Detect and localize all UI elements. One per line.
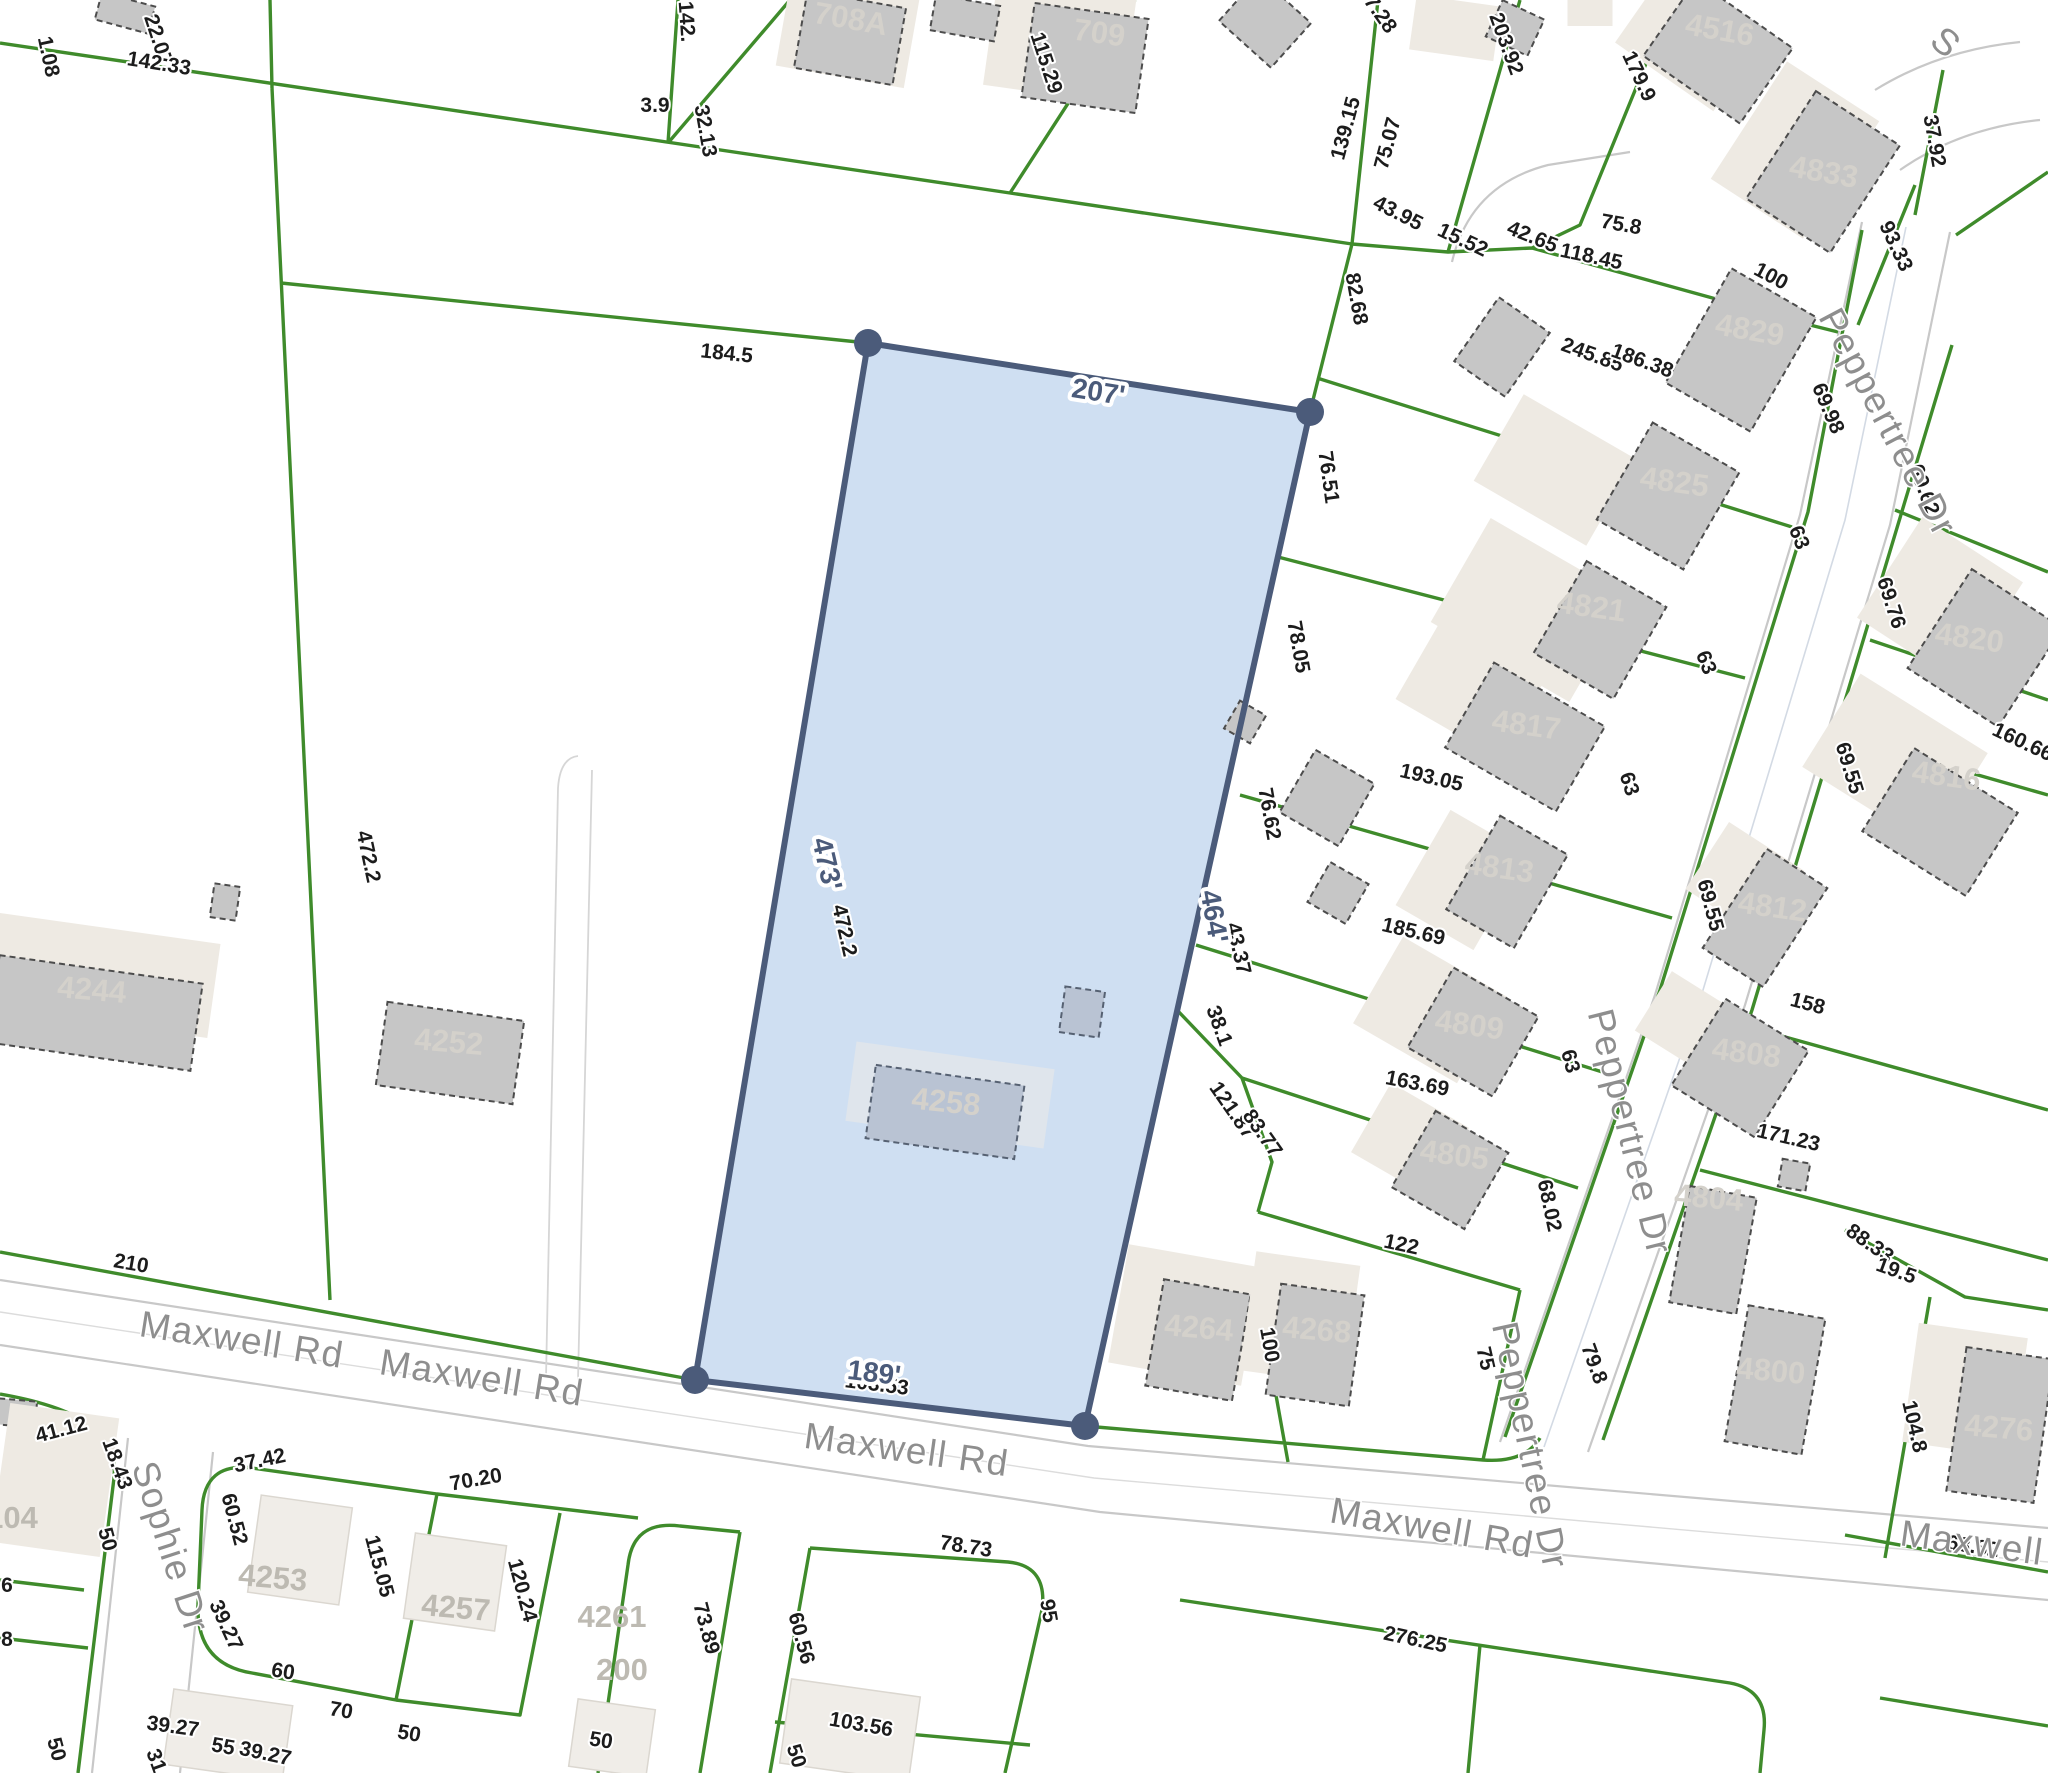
parcel-number-label: 4253 bbox=[237, 1557, 309, 1598]
dimension-label: 32.13 bbox=[690, 103, 722, 159]
dimension-label: 37.92 bbox=[1919, 113, 1951, 169]
dimension-label: 122 bbox=[1382, 1230, 1421, 1260]
building-shadow bbox=[1568, 0, 1613, 26]
parcel-vertex-ne[interactable] bbox=[1296, 398, 1324, 426]
street-name-label: S bbox=[1923, 18, 1969, 66]
dimension-label: 19.5 bbox=[1873, 1253, 1920, 1289]
parcel-number-label: 4804 bbox=[1673, 1177, 1746, 1218]
highlight-dimension-label: 464' bbox=[1194, 887, 1234, 945]
dimension-label: 15.52 bbox=[1434, 219, 1491, 262]
parcel-number-label: 4261 bbox=[578, 1599, 647, 1634]
dimension-label: 139.15 bbox=[1326, 94, 1365, 162]
dimension-label: 184.5 bbox=[699, 339, 754, 367]
southwest-boundaries bbox=[0, 1252, 740, 1773]
parcel-number-label: 4264 bbox=[1163, 1307, 1236, 1348]
dimension-label: 160.66 bbox=[1989, 718, 2048, 766]
parcel-number-label: 104 bbox=[0, 1500, 39, 1535]
dimension-label: 70.20 bbox=[448, 1464, 504, 1496]
dimension-label: 158 bbox=[1788, 988, 1828, 1019]
dimension-label: 82.68 bbox=[1341, 271, 1373, 327]
dimension-label: 276.25 bbox=[1382, 1622, 1450, 1658]
street-name-label: Maxwell R bbox=[1898, 1513, 2048, 1579]
street-name-label: Maxwell Rd bbox=[1327, 1490, 1537, 1566]
dimension-label: 3.9 bbox=[640, 94, 669, 117]
highlight-dimension-label: 189' bbox=[846, 1354, 903, 1391]
parcel-number-label: 4800 bbox=[1735, 1350, 1807, 1391]
dimension-label: 76.51 bbox=[1313, 449, 1343, 505]
dimension-label: 63 bbox=[1691, 647, 1721, 677]
dimension-label: 43.95 bbox=[1369, 191, 1427, 235]
dimension-label: 75.8 bbox=[1599, 210, 1644, 240]
dimension-label: 50 bbox=[396, 1720, 423, 1747]
parcel-map-canvas: 1.0822.07142.33142.3.932.13184.5115.297.… bbox=[0, 0, 2048, 1773]
dimension-label: 120.24 bbox=[503, 1556, 542, 1624]
dimension-label: 50 bbox=[588, 1727, 615, 1753]
dimension-label: 79.8 bbox=[1576, 1341, 1612, 1388]
dimension-label: 63 bbox=[1615, 769, 1644, 798]
parcel-number-label: 4257 bbox=[420, 1587, 492, 1628]
dimension-label: 115.05 bbox=[360, 1533, 399, 1600]
parcel-number-label: 4244 bbox=[56, 969, 129, 1010]
building-shadow bbox=[1409, 0, 1501, 61]
dimension-label: 78.05 bbox=[1283, 619, 1315, 675]
driveway-outline bbox=[546, 756, 592, 1380]
parcel-number-label: 4258 bbox=[910, 1081, 982, 1123]
street-name-label: Maxwell Rd bbox=[377, 1341, 587, 1414]
building-footprint bbox=[1059, 986, 1105, 1037]
parcel-number-label: 709 bbox=[1071, 12, 1127, 54]
building-footprint bbox=[210, 883, 240, 920]
dimension-label: 1.08 bbox=[33, 34, 64, 79]
dimension-label: 76.62 bbox=[1254, 786, 1286, 842]
parcel-vertex-se[interactable] bbox=[1071, 1412, 1099, 1440]
dimension-label: 70 bbox=[328, 1697, 355, 1724]
dimension-label: 7.28 bbox=[1359, 0, 1401, 38]
street-name-label: Maxwell Rd bbox=[137, 1303, 347, 1376]
dimension-label: 63 bbox=[1556, 1047, 1584, 1076]
parcel-number-label: 4268 bbox=[1281, 1309, 1353, 1350]
dimension-label: 171.23 bbox=[1755, 1119, 1823, 1156]
dimension-label: 60.52 bbox=[216, 1491, 252, 1548]
dimension-label: 55 bbox=[210, 1733, 237, 1760]
dimension-label: 68.02 bbox=[1533, 1178, 1566, 1234]
gis-map: 1.0822.07142.33142.3.932.13184.5115.297.… bbox=[0, 0, 2048, 1773]
parcel-number-label: 4276 bbox=[1963, 1407, 2035, 1448]
building-footprint bbox=[930, 0, 1000, 41]
dimension-label: 472.2 bbox=[352, 829, 385, 885]
building-footprint bbox=[1778, 1159, 1810, 1191]
dimension-label: 60 bbox=[270, 1658, 297, 1684]
building-footprint bbox=[1454, 297, 1550, 396]
dimension-label: 95 bbox=[1035, 1597, 1062, 1624]
parcel-number-label: 4252 bbox=[413, 1021, 485, 1062]
dimension-label: 73.89 bbox=[688, 1600, 724, 1657]
dimension-label: 75.07 bbox=[1370, 115, 1406, 172]
dimension-label: 6 bbox=[1, 1574, 13, 1597]
building-footprint bbox=[1219, 0, 1311, 68]
dimension-label: 118.45 bbox=[1558, 239, 1625, 275]
building-footprint bbox=[1307, 862, 1368, 924]
parcel-vertex-sw[interactable] bbox=[681, 1366, 709, 1394]
dimension-label: 42.65 bbox=[1504, 216, 1562, 257]
dimension-label: 142.33 bbox=[125, 47, 192, 80]
dimension-label: 69.98 bbox=[1807, 380, 1849, 438]
parcel-vertex-nw[interactable] bbox=[854, 329, 882, 357]
building-footprint bbox=[1280, 750, 1375, 846]
dimension-label: 50 bbox=[42, 1735, 70, 1764]
dimension-label: 193.05 bbox=[1398, 759, 1466, 796]
parcel-number-label: 200 bbox=[596, 1652, 648, 1687]
street-name-label: Maxwell Rd bbox=[802, 1415, 1012, 1484]
dimension-label: 142. bbox=[674, 0, 700, 42]
dimension-label: 8 bbox=[1, 1628, 13, 1651]
